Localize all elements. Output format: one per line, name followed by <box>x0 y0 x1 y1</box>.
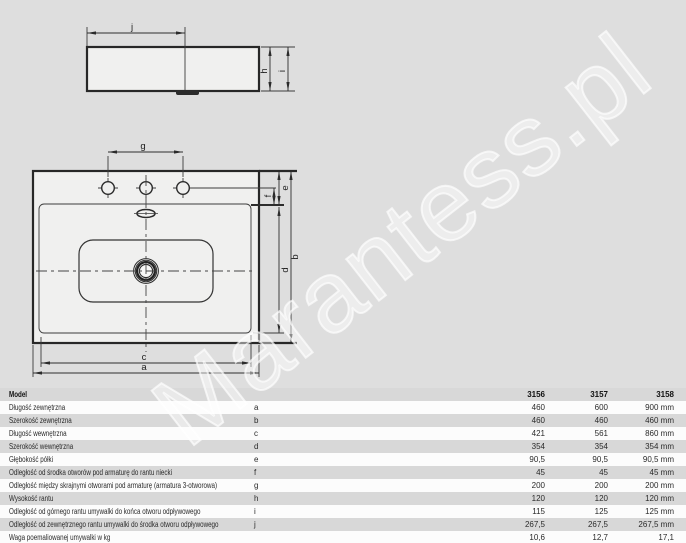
row-label: Odległość od górnego rantu umywalki do k… <box>9 505 200 518</box>
row-label: Długość wewnętrzna <box>9 427 67 440</box>
side-view-drawing: j h i <box>87 22 295 95</box>
row-label: Odległość między skrajnymi otworami pod … <box>9 479 217 492</box>
row-value-3157: 45 <box>599 466 608 479</box>
drawing-svg: j h i <box>0 0 686 388</box>
table-row: Głębokość półki e 90,5 90,5 90,5 mm <box>0 453 686 466</box>
row-label: Odległość od środka otworów pod armaturę… <box>9 466 172 479</box>
table-row: Odległość od górnego rantu umywalki do k… <box>0 505 686 518</box>
table-row: Odległość między skrajnymi otworami pod … <box>0 479 686 492</box>
table-row: Odległość od zewnętrznego rantu umywalki… <box>0 518 686 531</box>
table-row: Odległość od środka otworów pod armaturę… <box>0 466 686 479</box>
row-letter: i <box>254 505 256 518</box>
table-row: Długość zewnętrzna a 460 600 900 mm <box>0 401 686 414</box>
row-value-3156: 421 <box>532 427 545 440</box>
row-value-3156: 120 <box>532 492 545 505</box>
row-value-3158: 90,5 mm <box>643 453 674 466</box>
table-row: Szerokość zewnętrzna b 460 460 460 mm <box>0 414 686 427</box>
row-value-3158: 860 mm <box>645 427 674 440</box>
row-value-3158: 354 mm <box>645 440 674 453</box>
dim-label-d: d <box>280 267 291 272</box>
row-value-3158: 200 mm <box>645 479 674 492</box>
dim-label-j: j <box>130 22 133 33</box>
row-value-3158: 17,1 <box>658 531 674 543</box>
row-letter: j <box>254 518 256 531</box>
row-letter: a <box>254 401 258 414</box>
row-value-3156: 267,5 <box>525 518 545 531</box>
header-model-label: Model <box>9 388 27 401</box>
table-row: Waga poemaliowanej umywalki w kg 10,6 12… <box>0 531 686 543</box>
row-letter: c <box>254 427 258 440</box>
row-label: Długość zewnętrzna <box>9 401 65 414</box>
dim-label-e: e <box>280 185 291 190</box>
technical-drawing: j h i <box>0 0 686 388</box>
row-value-3156: 90,5 <box>529 453 545 466</box>
row-value-3158: 120 mm <box>645 492 674 505</box>
row-value-3157: 600 <box>595 401 608 414</box>
top-view-drawing: g f <box>33 141 301 377</box>
row-letter: g <box>254 479 258 492</box>
row-label: Szerokość wewnętrzna <box>9 440 73 453</box>
header-model-3158: 3158 <box>656 388 674 401</box>
row-value-3158: 460 mm <box>645 414 674 427</box>
row-label: Odległość od zewnętrznego rantu umywalki… <box>9 518 219 531</box>
dim-label-f: f <box>263 194 274 197</box>
drain-outlet-profile <box>176 90 199 95</box>
row-label: Szerokość zewnętrzna <box>9 414 72 427</box>
row-value-3158: 900 mm <box>645 401 674 414</box>
dim-label-g: g <box>140 141 145 152</box>
faucet-hole-left <box>102 182 115 195</box>
row-letter: h <box>254 492 258 505</box>
dim-label-a: a <box>141 362 147 373</box>
table-row: Wysokość rantu h 120 120 120 mm <box>0 492 686 505</box>
spec-table: Model 3156 3157 3158 Długość zewnętrzna … <box>0 388 686 543</box>
row-value-3157: 90,5 <box>592 453 608 466</box>
row-value-3157: 125 <box>595 505 608 518</box>
row-value-3156: 200 <box>532 479 545 492</box>
header-model-3156: 3156 <box>527 388 545 401</box>
washbasin-spec-sheet: j h i <box>0 0 686 543</box>
row-value-3158: 45 mm <box>650 466 674 479</box>
row-value-3156: 354 <box>532 440 545 453</box>
row-value-3158: 125 mm <box>645 505 674 518</box>
row-label: Wysokość rantu <box>9 492 53 505</box>
row-value-3156: 45 <box>536 466 545 479</box>
row-letter: e <box>254 453 258 466</box>
row-value-3157: 354 <box>595 440 608 453</box>
table-header-row: Model 3156 3157 3158 <box>0 388 686 401</box>
table-row: Długość wewnętrzna c 421 561 860 mm <box>0 427 686 440</box>
basin-profile <box>87 47 259 91</box>
header-model-3157: 3157 <box>590 388 608 401</box>
row-value-3157: 561 <box>595 427 608 440</box>
row-value-3156: 115 <box>532 505 545 518</box>
row-value-3156: 460 <box>532 401 545 414</box>
row-letter: b <box>254 414 258 427</box>
row-label: Waga poemaliowanej umywalki w kg <box>9 531 110 543</box>
row-value-3157: 120 <box>595 492 608 505</box>
row-value-3157: 267,5 <box>588 518 608 531</box>
dim-label-h: h <box>259 68 270 73</box>
dim-label-i: i <box>277 70 288 72</box>
row-value-3158: 267,5 mm <box>638 518 674 531</box>
row-value-3157: 200 <box>595 479 608 492</box>
table-row: Szerokość wewnętrzna d 354 354 354 mm <box>0 440 686 453</box>
row-label: Głębokość półki <box>9 453 53 466</box>
row-value-3156: 10,6 <box>529 531 545 543</box>
row-value-3157: 12,7 <box>592 531 608 543</box>
row-value-3156: 460 <box>532 414 545 427</box>
row-value-3157: 460 <box>595 414 608 427</box>
row-letter: f <box>254 466 256 479</box>
dim-label-b: b <box>290 254 301 259</box>
faucet-hole-right <box>177 182 190 195</box>
row-letter: d <box>254 440 258 453</box>
